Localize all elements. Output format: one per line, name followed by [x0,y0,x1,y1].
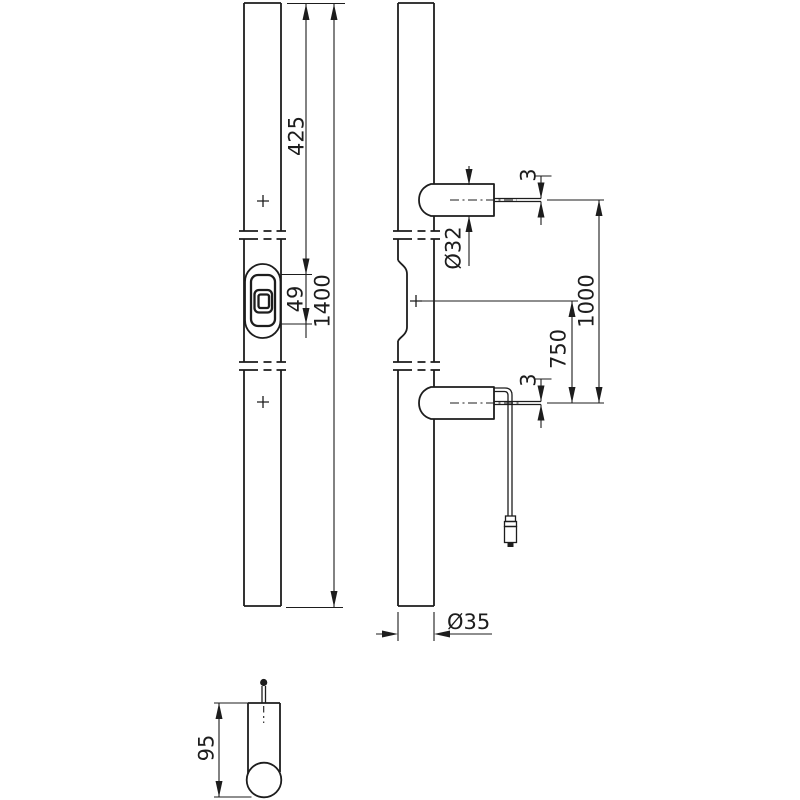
cable-inner-line [494,392,508,517]
connection-cable [494,388,517,547]
dim-1400-arrow-bottom [331,591,338,607]
front-bar-break-lines [239,231,286,370]
upper-post-spacer-plate [494,199,541,202]
dim-d32: Ø32 [441,166,472,270]
dim-425-arrow-top [303,4,310,20]
cable-connector-ring [505,522,517,527]
dim-3-upper: 3 [516,168,551,225]
dim-3-lower-arrow-bottom [538,405,545,421]
detail-pin-head [260,679,267,686]
dim-3-lower-label: 3 [516,373,540,386]
dim-49-label: 49 [283,286,307,313]
lower-mounting-post [419,387,541,419]
dim-750-arrow-bottom [569,387,576,403]
dim-d35-extensions [398,612,434,641]
dim-1000-arrow-bottom [596,387,603,403]
dim-750-label: 750 [546,329,570,369]
dim-d35: Ø35 [376,610,492,641]
dim-1400-label: 1400 [310,274,334,327]
dim-d32-arrow-top [466,169,473,185]
cable-connector-tip [508,543,514,548]
dim-1000-arrow-top [596,200,603,216]
side-bar-center-mark [410,295,422,307]
dim-3-upper-label: 3 [516,168,540,181]
dim-3-upper-arrow-top [538,183,545,199]
cable-connector-collar [506,516,516,522]
dim-3-upper-arrow-bottom [538,202,545,218]
dim-425: 425 [284,4,309,275]
dim-3-lower-arrow-top [538,386,545,402]
detail-pin [262,686,266,703]
fingerprint-module [245,264,281,338]
dim-95-arrow-top [216,703,223,719]
detail-bar-circle [247,763,282,798]
side-view-bar [393,3,440,606]
front-view-bar [239,3,286,606]
dim-95-label: 95 [194,735,218,762]
dim-95: 95 [194,703,251,797]
technical-drawing-page: 425 49 1400 Ø32 3 1000 750 [0,0,800,800]
dim-3-lower: 3 [516,373,551,428]
dim-d35-arrow-left [382,631,398,638]
dim-425-arrow-bottom [303,259,310,275]
upper-mounting-post [419,184,541,216]
dim-95-arrow-bottom [216,781,223,797]
cable-outer-line [494,388,512,516]
dim-49: 49 [281,275,312,339]
bottom-detail-view [247,679,282,797]
dim-d32-arrow-bottom [466,216,473,232]
sensor-window [259,295,270,309]
handle-technical-drawing: 425 49 1400 Ø32 3 1000 750 [0,0,800,800]
cable-connector-body [505,527,517,543]
side-bar-recess-profile [398,260,407,341]
dim-425-label: 425 [284,116,308,156]
dim-1400-arrow-top [331,4,338,20]
dim-d35-label: Ø35 [447,610,490,634]
dim-d32-label: Ø32 [441,226,465,269]
